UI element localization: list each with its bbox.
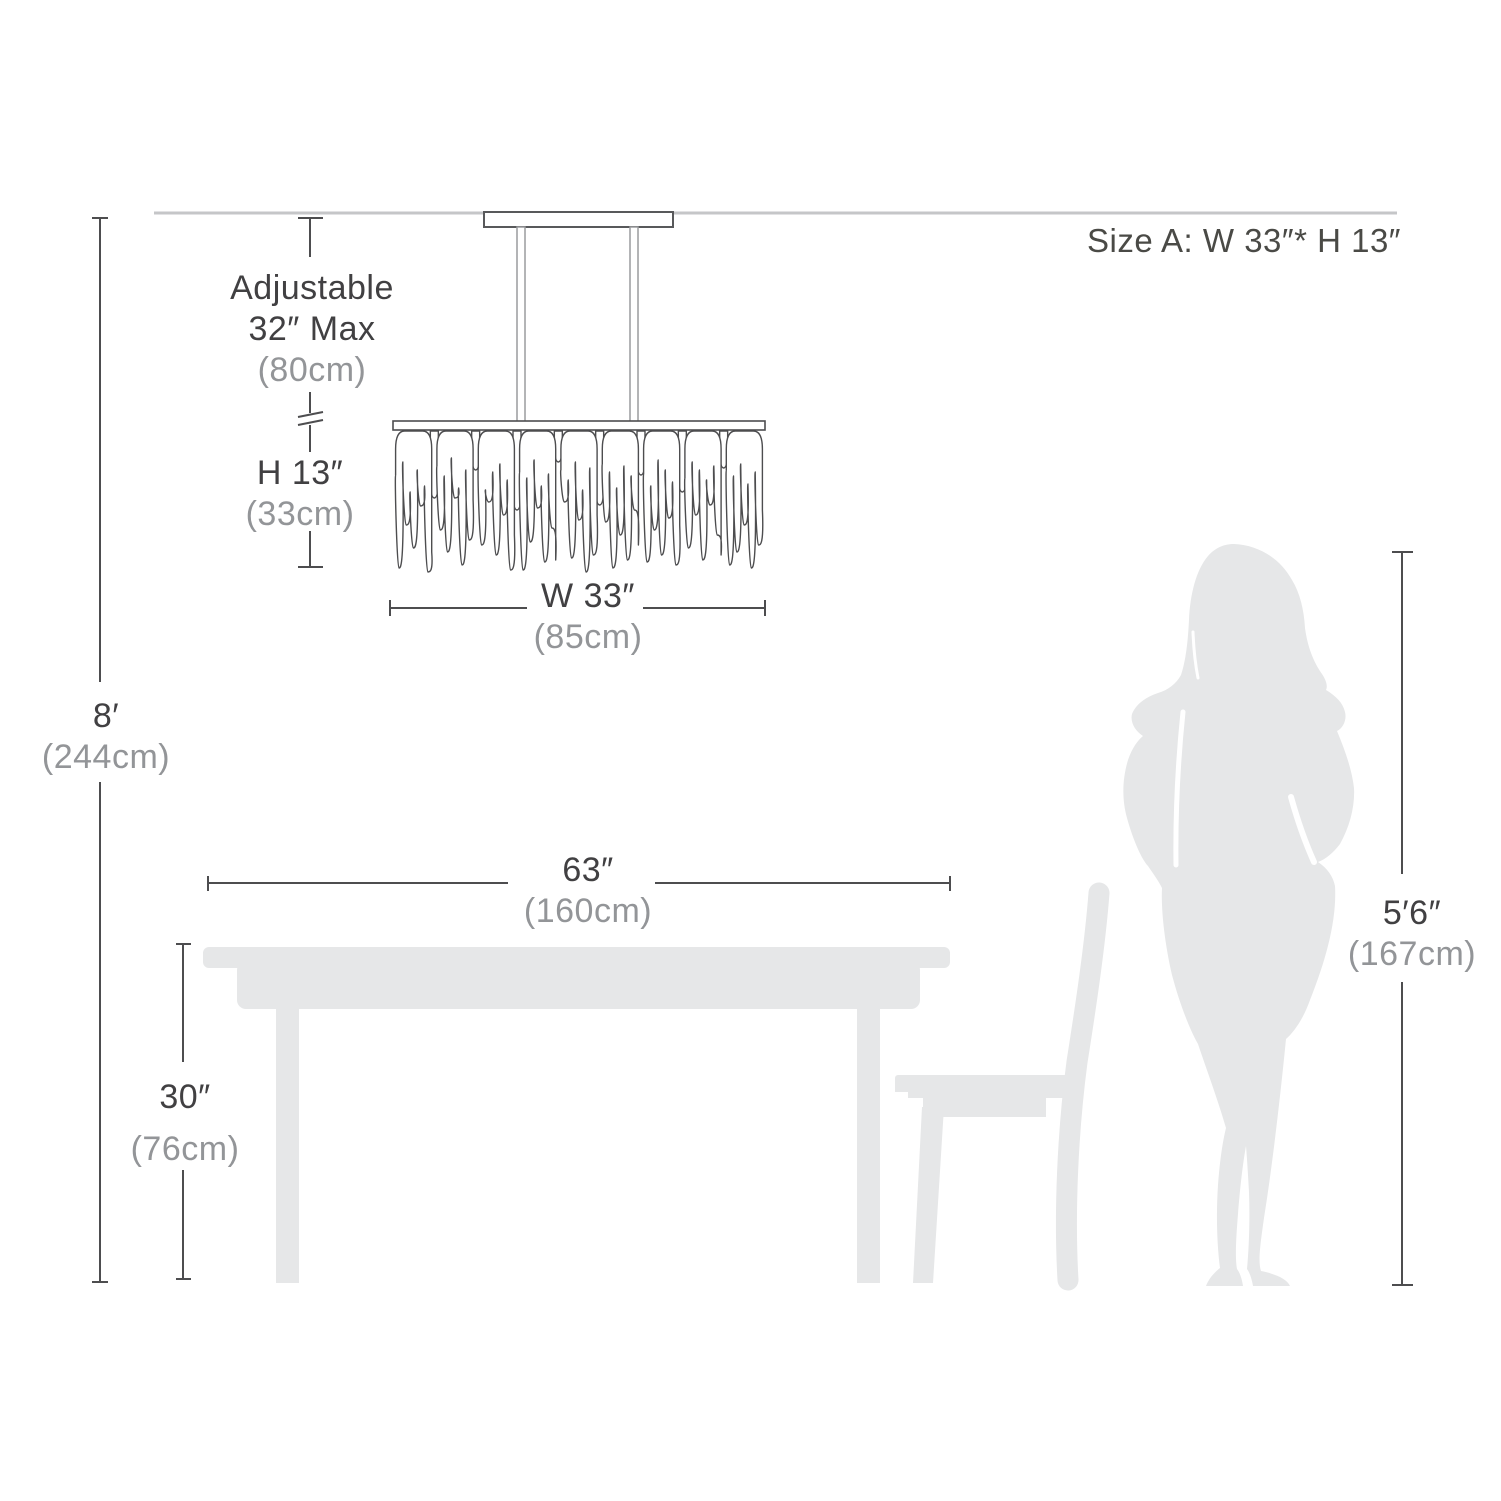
table-apron: [237, 961, 920, 1009]
size-variant-label: Size A: W 33″* H 13″: [1087, 222, 1401, 260]
table-width-metric: (160cm): [524, 891, 652, 932]
adjustable-height-label: Adjustable 32″ Max (80cm): [230, 268, 394, 391]
ceiling-height-imperial: 8′: [42, 696, 170, 737]
ceiling-height-label: 8′ (244cm): [42, 696, 170, 778]
table-leg-left: [276, 1005, 299, 1283]
woman-silhouette: [1123, 544, 1354, 1286]
adjustable-line2: 32″ Max: [230, 309, 394, 350]
table-height-imperial: 30″: [131, 1071, 240, 1123]
fixture-height-metric: (33cm): [246, 494, 355, 535]
chair-seat: [895, 1075, 1083, 1098]
table-leg-right: [857, 1005, 880, 1283]
fixture-width-metric: (85cm): [534, 617, 643, 658]
drip-shape: [478, 431, 515, 570]
chandelier-canopy: [484, 212, 673, 227]
chandelier-rod-left: [517, 227, 525, 423]
drip-shape: [437, 431, 474, 565]
chandelier-drip-shade: [395, 431, 762, 572]
fixture-width-label: W 33″ (85cm): [534, 576, 643, 658]
drip-shape: [519, 431, 556, 570]
chandelier-rod-right: [630, 227, 638, 423]
chair-seat-notch: [895, 1092, 908, 1099]
drip-shape: [602, 431, 639, 568]
drip-shape: [643, 431, 680, 565]
adjustable-metric: (80cm): [230, 350, 394, 391]
adjustable-line1: Adjustable: [230, 268, 394, 309]
chandelier-top-frame: [393, 421, 765, 430]
drip-shape: [395, 431, 432, 572]
drip-shape: [726, 431, 763, 568]
drip-shape: [561, 431, 598, 572]
person-height-metric: (167cm): [1348, 934, 1476, 975]
person-height-label: 5′6″ (167cm): [1348, 893, 1476, 975]
person-height-imperial: 5′6″: [1348, 893, 1476, 934]
table-silhouette: [203, 947, 950, 1283]
drip-shape: [685, 431, 722, 560]
table-width-imperial: 63″: [524, 850, 652, 891]
chair-front-leg: [913, 1107, 944, 1283]
fixture-height-label: H 13″ (33cm): [246, 453, 355, 535]
table-height-label: 30″ (76cm): [131, 1071, 240, 1175]
fixture-height-imperial: H 13″: [246, 453, 355, 494]
dimension-diagram: Size A: W 33″* H 13″ Adjustable 32″ Max …: [0, 0, 1501, 1501]
chandelier-drawing: [393, 212, 765, 572]
table-height-metric: (76cm): [131, 1123, 240, 1175]
ceiling-height-metric: (244cm): [42, 737, 170, 778]
fixture-width-imperial: W 33″: [534, 576, 643, 617]
table-width-label: 63″ (160cm): [524, 850, 652, 932]
